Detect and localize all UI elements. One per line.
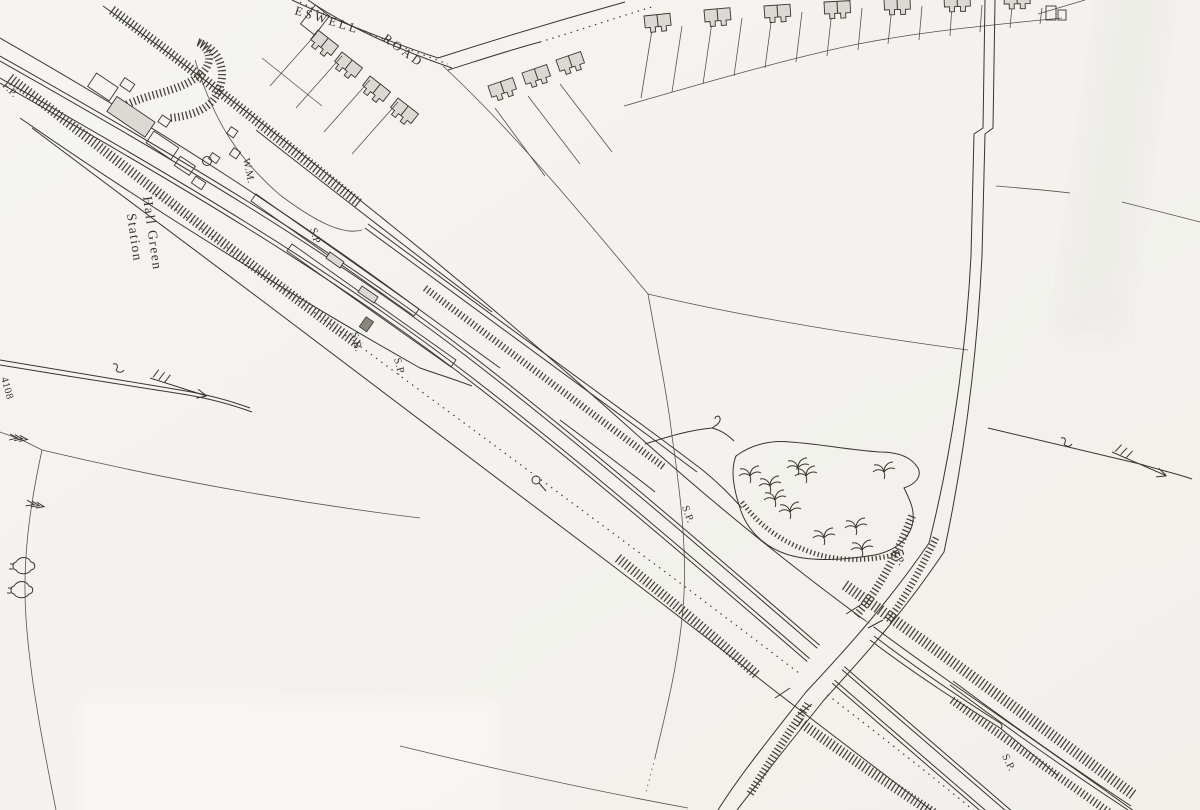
paper-background [0, 0, 1200, 810]
scanned-map-page: Hall Green Station ESWELL ROAD W.M. S.P.… [0, 0, 1200, 810]
map-canvas: Hall Green Station ESWELL ROAD W.M. S.P.… [0, 0, 1200, 810]
